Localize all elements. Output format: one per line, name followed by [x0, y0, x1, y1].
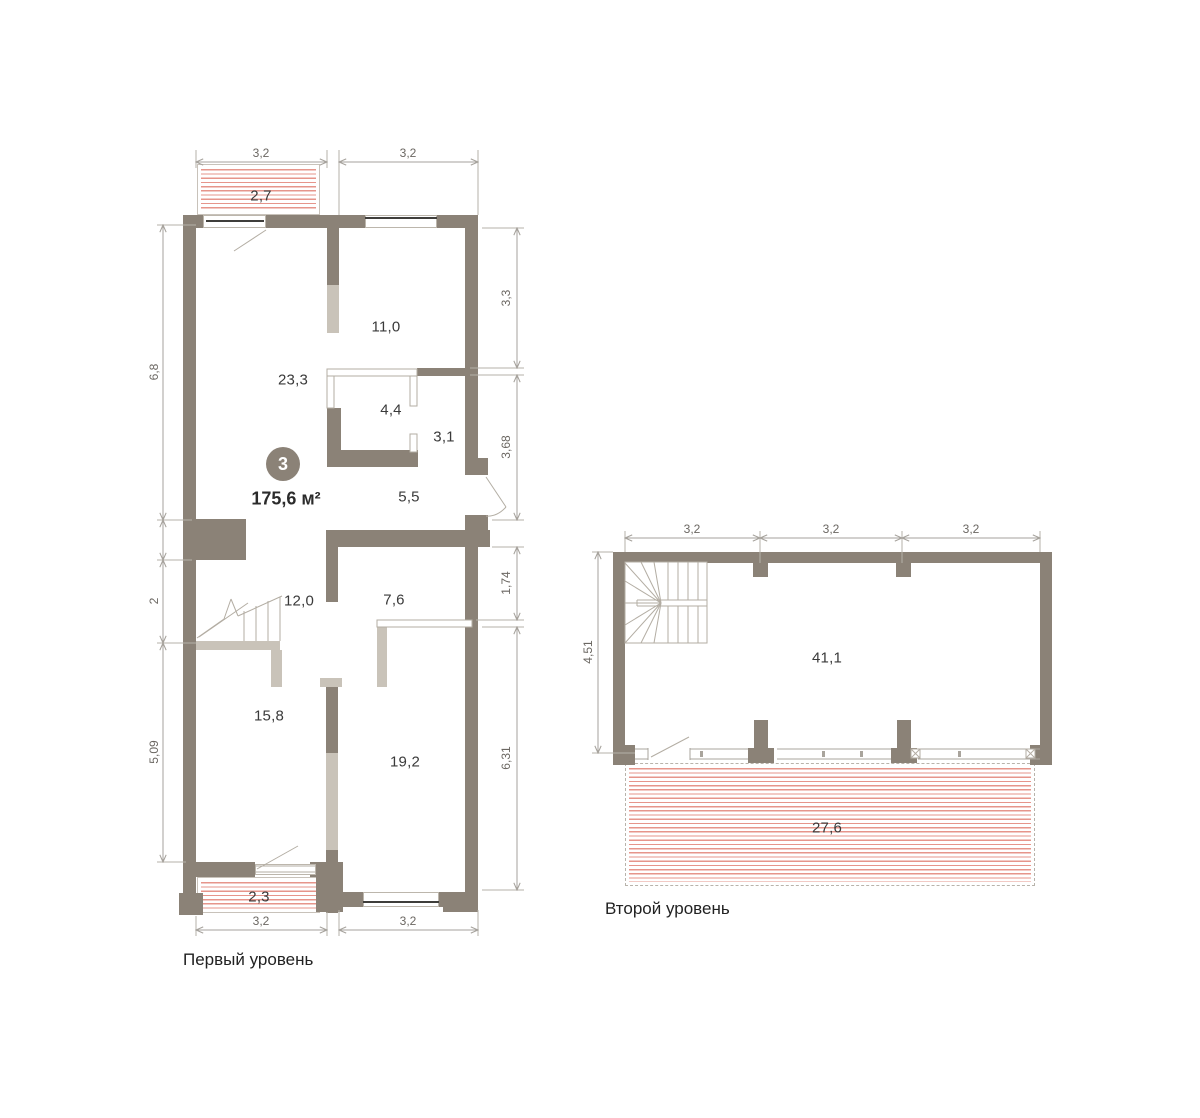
room-area-label: 2,3 — [248, 889, 269, 906]
room-area-label: 27,6 — [812, 820, 842, 837]
wall-segment — [465, 458, 488, 475]
total-area-label: 175,6 м² — [251, 489, 320, 510]
wall-segment-light — [377, 627, 387, 687]
room-area-label: 19,2 — [390, 754, 420, 771]
dim-label: 1,74 — [499, 571, 513, 595]
wall-segment — [183, 862, 255, 877]
dims-level1-right: 3,3 3,68 1,74 6,31 — [470, 228, 524, 890]
wall-segment — [417, 368, 465, 376]
wall-segment — [1030, 745, 1052, 765]
room-area-label: 12,0 — [284, 593, 314, 610]
wall-segment — [183, 215, 205, 228]
room-area-label: 2,7 — [250, 188, 271, 205]
wall-segment — [465, 228, 478, 458]
unit-number-badge: 3 — [266, 447, 300, 481]
wall-segment-light — [196, 641, 280, 650]
wall-segment — [327, 408, 341, 452]
dim-label: 3,68 — [499, 435, 513, 459]
floorplan-canvas: 3,2 3,2 3,2 3,2 6,8 2 5,09 — [0, 0, 1200, 1118]
wall-segment — [326, 687, 338, 753]
pier — [897, 720, 911, 748]
wall-segment — [465, 547, 478, 897]
room-area-label: 41,1 — [812, 650, 842, 667]
dims-level2-left: 4,51 — [581, 552, 635, 753]
pier-foot — [891, 748, 917, 763]
pier — [754, 720, 768, 748]
dim-label: 3,2 — [253, 914, 270, 928]
dims-level1-bottom: 3,2 3,2 — [196, 910, 478, 936]
room-area-label: 5,5 — [398, 489, 419, 506]
wall-segment — [341, 215, 367, 228]
wall-segment — [613, 552, 1052, 563]
wall-segment-light — [326, 753, 338, 850]
room-area-label: 11,0 — [372, 319, 401, 336]
wall-segment — [327, 228, 339, 285]
pier — [896, 563, 911, 577]
room-area-label: 3,1 — [433, 429, 454, 446]
wall-segment — [183, 215, 196, 915]
wall-segment — [326, 547, 338, 602]
wall-segment — [327, 450, 418, 467]
dim-label: 3,2 — [400, 914, 417, 928]
wall-segment — [1040, 552, 1052, 763]
dim-label: 6,8 — [147, 363, 161, 380]
room-area-label: 4,4 — [380, 402, 401, 419]
wall-segment — [437, 215, 478, 228]
wall-segment — [613, 745, 635, 765]
dim-label: 3,2 — [823, 522, 840, 536]
stairs-level2 — [625, 562, 707, 643]
balcony-door-opening — [255, 864, 316, 875]
dim-label: 6,31 — [499, 746, 513, 770]
pier-foot — [748, 748, 774, 763]
wall-segment-light — [320, 678, 342, 687]
wall-segment — [266, 215, 341, 228]
window-opening — [365, 215, 437, 228]
wall-segment-light — [327, 285, 339, 333]
pier — [753, 563, 768, 577]
window-frames — [206, 218, 439, 902]
wall-segment — [613, 552, 625, 763]
dim-label: 5,09 — [147, 740, 161, 764]
wall-segment — [179, 893, 203, 915]
dim-label: 3,2 — [963, 522, 980, 536]
dim-label: 4,51 — [581, 640, 595, 664]
stairs-level1 — [197, 596, 282, 641]
dim-label: 3,2 — [253, 146, 270, 160]
room-area-label: 7,6 — [383, 592, 404, 609]
glazing-band — [635, 737, 1040, 760]
room-area-label: 15,8 — [254, 708, 284, 725]
window-opening — [363, 892, 439, 907]
level1-caption: Первый уровень — [183, 950, 313, 970]
dim-label: 3,2 — [684, 522, 701, 536]
level2-caption: Второй уровень — [605, 899, 730, 919]
room-area-label: 23,3 — [278, 372, 308, 389]
wall-segment-light — [271, 650, 282, 687]
dim-label: 3,3 — [499, 289, 513, 306]
dim-label: 3,2 — [400, 146, 417, 160]
wall-segment — [326, 530, 490, 547]
balcony-door-opening — [203, 215, 266, 228]
dim-label: 2 — [147, 597, 161, 604]
shaft-block — [189, 519, 246, 560]
